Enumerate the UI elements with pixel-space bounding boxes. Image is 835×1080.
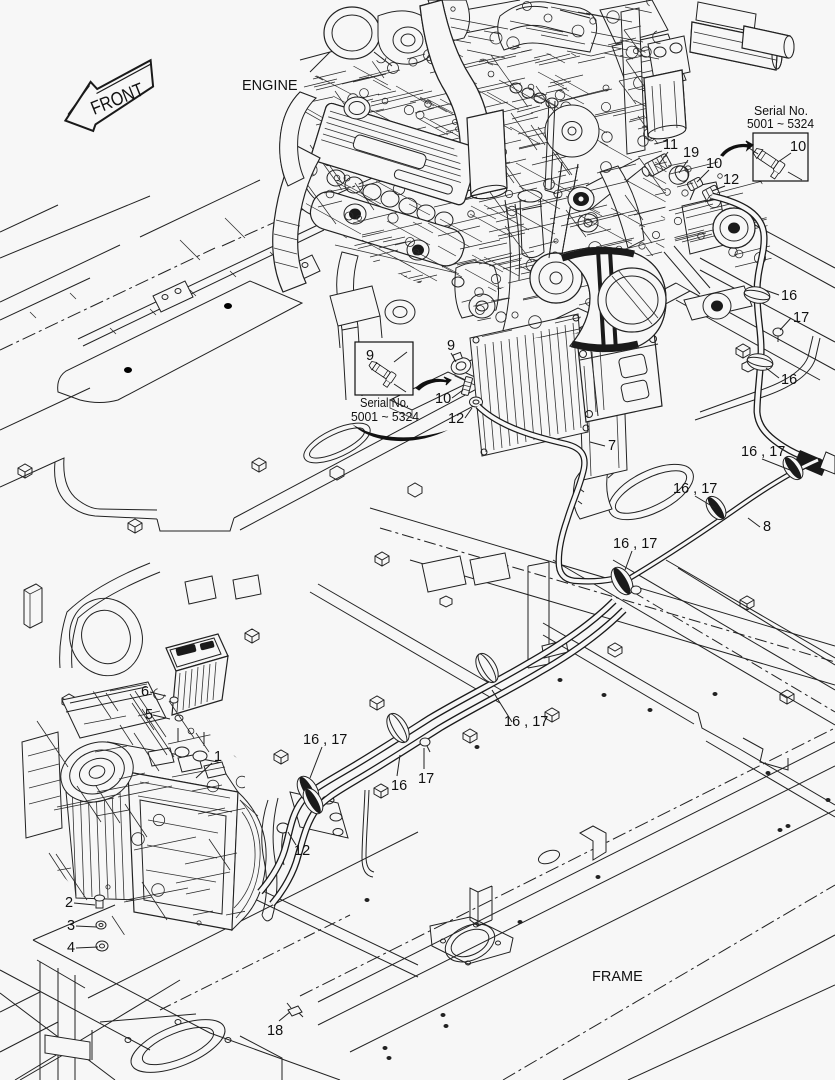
svg-text:12: 12	[723, 172, 739, 188]
svg-text:16: 16	[781, 372, 797, 388]
svg-text:6: 6	[141, 684, 149, 700]
svg-text:16 , 17: 16 , 17	[504, 714, 548, 730]
svg-text:10: 10	[790, 139, 806, 155]
svg-text:12: 12	[294, 843, 310, 859]
svg-text:17: 17	[418, 771, 434, 787]
svg-text:4: 4	[67, 940, 75, 956]
svg-text:1: 1	[214, 749, 222, 765]
svg-text:10: 10	[706, 156, 722, 172]
svg-text:16 , 17: 16 , 17	[741, 444, 785, 460]
svg-text:16 , 17: 16 , 17	[613, 536, 657, 552]
svg-text:FRAME: FRAME	[592, 969, 643, 985]
svg-text:16: 16	[781, 288, 797, 304]
svg-text:16: 16	[391, 778, 407, 794]
svg-text:ENGINE: ENGINE	[242, 78, 298, 94]
svg-text:10: 10	[435, 391, 451, 407]
svg-text:5001 ~ 5324: 5001 ~ 5324	[747, 116, 814, 131]
svg-text:5: 5	[145, 707, 153, 723]
svg-text:9: 9	[447, 338, 455, 354]
svg-text:17: 17	[793, 310, 809, 326]
svg-text:8: 8	[763, 519, 771, 535]
svg-text:18: 18	[267, 1023, 283, 1039]
svg-text:3: 3	[67, 918, 75, 934]
svg-text:5001 ~ 5324: 5001 ~ 5324	[351, 409, 419, 424]
svg-text:12: 12	[448, 411, 464, 427]
svg-text:7: 7	[608, 438, 616, 454]
svg-text:19: 19	[683, 145, 699, 161]
svg-text:Serial No.: Serial No.	[360, 395, 409, 410]
svg-text:2: 2	[65, 895, 73, 911]
svg-text:16 , 17: 16 , 17	[673, 481, 717, 497]
svg-text:11: 11	[663, 137, 678, 153]
svg-text:16 , 17: 16 , 17	[303, 732, 347, 748]
